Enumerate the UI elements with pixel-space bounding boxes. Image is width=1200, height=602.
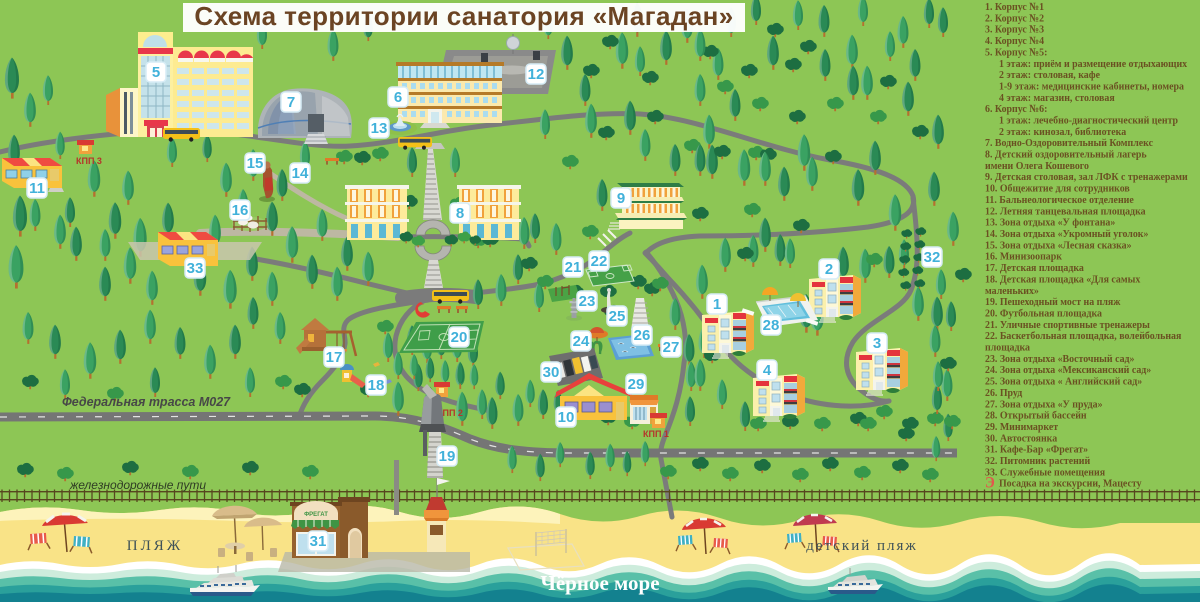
svg-text:9. Детская столовая, зал ЛФК с: 9. Детская столовая, зал ЛФК с тренажера… — [985, 172, 1188, 184]
svg-text:23: 23 — [579, 293, 596, 310]
svg-text:27: 27 — [663, 339, 680, 356]
svg-text:18: 18 — [368, 377, 385, 394]
svg-text:Федеральная трасса М027: Федеральная трасса М027 — [62, 395, 231, 409]
svg-text:29: 29 — [628, 376, 645, 393]
svg-text:маленьких»: маленьких» — [985, 285, 1039, 297]
svg-text:30. Автостоянка: 30. Автостоянка — [985, 433, 1058, 445]
svg-text:26: 26 — [634, 327, 651, 344]
svg-text:23. Зона отдыха «Восточный сад: 23. Зона отдыха «Восточный сад» — [985, 353, 1134, 365]
svg-text:21. Уличные спортивные тренаже: 21. Уличные спортивные тренажеры — [985, 319, 1150, 331]
svg-text:32. Питомник растений: 32. Питомник растений — [985, 456, 1090, 468]
svg-text:13. Зона отдыха «У фонтана»: 13. Зона отдыха «У фонтана» — [985, 217, 1115, 229]
svg-text:КПП 3: КПП 3 — [76, 156, 102, 166]
svg-text:10. Общежитие для сотрудников: 10. Общежитие для сотрудников — [985, 183, 1130, 195]
svg-text:Чёрное море: Чёрное море — [540, 571, 659, 595]
svg-text:2: 2 — [825, 261, 833, 278]
svg-text:КПП 1: КПП 1 — [643, 429, 669, 439]
svg-text:ФРЕГАТ: ФРЕГАТ — [304, 512, 328, 518]
svg-text:18. Детская площадка «Для самы: 18. Детская площадка «Для самых — [985, 274, 1141, 286]
svg-text:20: 20 — [451, 329, 468, 346]
svg-text:детский пляж: детский пляж — [806, 538, 918, 554]
svg-text:21: 21 — [565, 259, 582, 276]
svg-text:25: 25 — [609, 308, 626, 325]
svg-text:5: 5 — [152, 64, 160, 81]
svg-text:имени Олега Кошевого: имени Олега Кошевого — [985, 160, 1089, 172]
svg-text:12. Летняя танцевальная площад: 12. Летняя танцевальная площадка — [985, 206, 1146, 218]
svg-text:ПЛЯЖ: ПЛЯЖ — [127, 538, 183, 554]
svg-text:1-9 этаж: медицинские кабинеты: 1-9 этаж: медицинские кабинеты, номера — [999, 81, 1185, 93]
svg-text:5. Корпус №5:: 5. Корпус №5: — [985, 47, 1047, 59]
svg-text:1. Корпус №1: 1. Корпус №1 — [985, 2, 1044, 14]
svg-text:7: 7 — [287, 94, 295, 111]
svg-text:14. Зона отдыха «Укромный угол: 14. Зона отдыха «Укромный уголок» — [985, 229, 1148, 241]
svg-text:16. Минизоопарк: 16. Минизоопарк — [985, 251, 1062, 263]
svg-text:6: 6 — [394, 89, 402, 106]
svg-text:Посадка на экскурсии, Мацесту: Посадка на экскурсии, Мацесту — [999, 478, 1142, 490]
svg-text:11: 11 — [29, 180, 45, 197]
svg-text:9: 9 — [617, 190, 625, 207]
svg-text:13: 13 — [371, 120, 388, 137]
svg-text:4 этаж: магазин, столовая: 4 этаж: магазин, столовая — [999, 92, 1115, 104]
svg-text:10: 10 — [558, 409, 575, 426]
svg-text:20. Футбольная площадка: 20. Футбольная площадка — [985, 308, 1103, 320]
svg-text:28. Открытый бассейн: 28. Открытый бассейн — [985, 410, 1087, 422]
svg-text:2. Корпус №2: 2. Корпус №2 — [985, 13, 1044, 25]
svg-text:железнодорожные пути: железнодорожные пути — [69, 478, 206, 492]
svg-text:6. Корпус №6:: 6. Корпус №6: — [985, 104, 1047, 116]
svg-text:12: 12 — [528, 66, 545, 83]
svg-text:30: 30 — [543, 364, 560, 381]
svg-text:24: 24 — [573, 333, 590, 350]
svg-text:31: 31 — [310, 533, 327, 550]
svg-text:29. Минимаркет: 29. Минимаркет — [985, 422, 1058, 434]
svg-text:4. Корпус №4: 4. Корпус №4 — [985, 36, 1045, 48]
svg-text:24. Зона отдыха «Мексиканский: 24. Зона отдыха «Мексиканский сад» — [985, 365, 1151, 377]
svg-text:Схема территории санатория «Ма: Схема территории санатория «Магадан» — [194, 1, 733, 31]
svg-text:33. Служебные помещения: 33. Служебные помещения — [985, 467, 1105, 479]
svg-text:площадка: площадка — [985, 342, 1031, 354]
svg-text:Э: Э — [985, 474, 995, 492]
svg-text:27. Зона отдыха «У пруда»: 27. Зона отдыха «У пруда» — [985, 399, 1103, 411]
svg-text:7. Водно-Оздоровительный Компл: 7. Водно-Оздоровительный Комплекс — [985, 138, 1153, 150]
svg-text:8. Детский оздоровительный лаг: 8. Детский оздоровительный лагерь — [985, 149, 1147, 161]
svg-text:17: 17 — [326, 349, 343, 366]
svg-text:1: 1 — [713, 296, 721, 313]
svg-text:14: 14 — [292, 165, 309, 182]
svg-text:22. Баскетбольная площадка, во: 22. Баскетбольная площадка, волейбольная — [985, 331, 1182, 343]
svg-text:15. Зона отдыха «Лесная сказка: 15. Зона отдыха «Лесная сказка» — [985, 240, 1132, 252]
svg-text:19: 19 — [439, 448, 456, 465]
svg-text:28: 28 — [763, 317, 780, 334]
svg-text:17. Детская площадка: 17. Детская площадка — [985, 263, 1085, 275]
svg-text:11. Бальнеологическое отделени: 11. Бальнеологическое отделение — [985, 194, 1134, 206]
svg-text:31. Кафе-Бар «Фрегат»: 31. Кафе-Бар «Фрегат» — [985, 444, 1088, 456]
svg-text:22: 22 — [591, 253, 608, 270]
svg-text:1 этаж: приём и размещение отд: 1 этаж: приём и размещение отдыхающих — [999, 58, 1188, 70]
svg-text:2 этаж: кинозал, библиотека: 2 этаж: кинозал, библиотека — [999, 126, 1127, 138]
svg-text:26. Пруд: 26. Пруд — [985, 387, 1023, 399]
svg-text:8: 8 — [456, 205, 464, 222]
svg-text:15: 15 — [247, 155, 264, 172]
svg-text:16: 16 — [232, 202, 249, 219]
svg-text:3. Корпус №3: 3. Корпус №3 — [985, 24, 1044, 36]
svg-text:2 этаж: столовая, кафе: 2 этаж: столовая, кафе — [999, 70, 1100, 82]
svg-text:3: 3 — [873, 335, 881, 352]
svg-text:25. Зона отдыха « Английский с: 25. Зона отдыха « Английский сад» — [985, 376, 1142, 388]
svg-text:33: 33 — [187, 260, 204, 277]
svg-text:32: 32 — [924, 249, 941, 266]
svg-text:4: 4 — [763, 362, 772, 379]
svg-text:19. Пешеходный мост на пляж: 19. Пешеходный мост на пляж — [985, 297, 1121, 309]
svg-text:1 этаж: лечебно-диагностически: 1 этаж: лечебно-диагностический центр — [999, 115, 1178, 127]
